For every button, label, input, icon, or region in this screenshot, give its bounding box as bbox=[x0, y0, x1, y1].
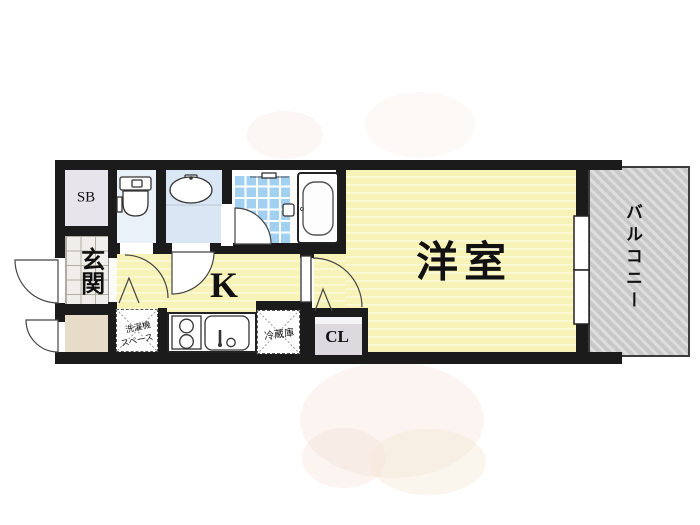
fixtures-layer bbox=[0, 0, 700, 525]
bathtub-icon bbox=[298, 173, 338, 243]
western-room-door bbox=[301, 256, 362, 311]
closet-label: CL bbox=[325, 327, 349, 347]
storage-door-swing-arc bbox=[26, 320, 58, 352]
stove-burners-icon bbox=[172, 316, 201, 349]
bath-door-knob bbox=[283, 204, 294, 216]
shower-door-track bbox=[250, 173, 289, 178]
balcony-label: バルコニー bbox=[624, 203, 641, 313]
wash-basin-icon bbox=[166, 175, 222, 205]
toilet-icon bbox=[117, 177, 151, 216]
balcony-window bbox=[574, 216, 589, 324]
powder-door-swing-arc bbox=[172, 252, 214, 294]
kitchen-sink-icon bbox=[205, 316, 249, 350]
kitchen-label: K bbox=[210, 264, 238, 306]
western-room-label: 洋室 bbox=[416, 229, 512, 290]
shower-door-swing-arc bbox=[235, 208, 271, 244]
front-door-swing-arc bbox=[15, 260, 58, 303]
floorplan: SB 玄関 K 洋室 CL バルコニー 冷蔵庫 洗濯機 スペース bbox=[0, 0, 700, 525]
entrance-label: 玄関 bbox=[76, 247, 104, 295]
shoe-box-label: SB bbox=[77, 190, 95, 207]
toilet-door-swing-arc bbox=[119, 255, 168, 303]
